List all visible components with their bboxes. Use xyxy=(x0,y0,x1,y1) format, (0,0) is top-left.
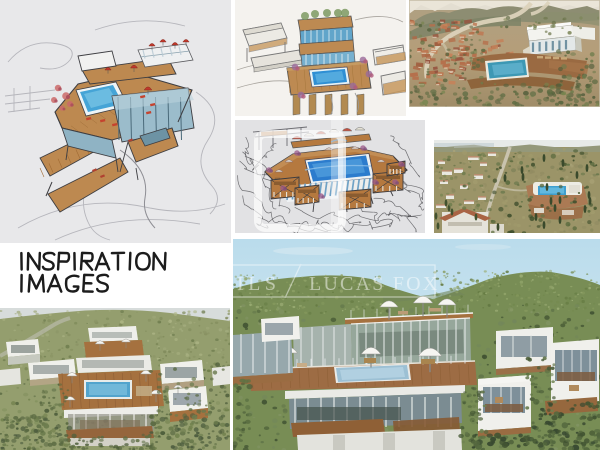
svg-text:LUCAS FOX: LUCAS FOX xyxy=(309,273,439,295)
svg-text:DILS: DILS xyxy=(233,273,280,295)
